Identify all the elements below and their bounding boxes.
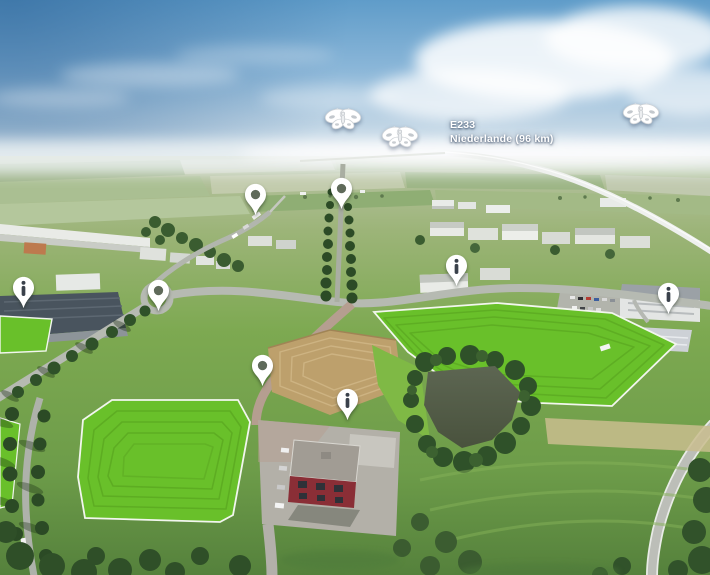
info-pin-4[interactable] xyxy=(336,388,359,421)
info-pin-2[interactable] xyxy=(657,282,680,315)
viewpoint-pin-3[interactable] xyxy=(147,279,170,312)
red-building-site xyxy=(258,420,400,536)
butterfly-marker-3[interactable] xyxy=(621,101,661,127)
pin-hole xyxy=(258,361,267,370)
info-icon xyxy=(455,259,459,274)
aerial-photo xyxy=(0,0,710,575)
info-pin-3[interactable] xyxy=(12,276,35,309)
info-pin-1[interactable] xyxy=(445,254,468,287)
pin-hole xyxy=(251,190,260,199)
info-icon xyxy=(346,393,350,408)
butterfly-icon xyxy=(324,107,363,131)
viewpoint-pin-4[interactable] xyxy=(251,354,274,387)
plot-left-edge[interactable] xyxy=(0,316,52,353)
info-icon xyxy=(22,281,26,296)
viewpoint-pin-2[interactable] xyxy=(330,177,353,210)
route-label-line2: Niederlande (96 km) xyxy=(450,133,554,147)
plot-left[interactable] xyxy=(78,400,250,522)
pin-hole xyxy=(337,184,346,193)
pin-hole xyxy=(154,286,163,295)
horizon-haze xyxy=(0,139,710,174)
aerial-panorama-view: E233 Niederlande (96 km) xyxy=(0,0,710,575)
butterfly-icon xyxy=(622,102,661,126)
route-label-e233: E233 Niederlande (96 km) xyxy=(450,119,554,146)
viewpoint-pin-1[interactable] xyxy=(244,183,267,216)
info-icon xyxy=(667,287,671,302)
butterfly-marker-1[interactable] xyxy=(323,106,363,132)
butterfly-icon xyxy=(381,125,420,149)
butterfly-marker-2[interactable] xyxy=(380,124,420,150)
route-label-line1: E233 xyxy=(450,119,554,133)
